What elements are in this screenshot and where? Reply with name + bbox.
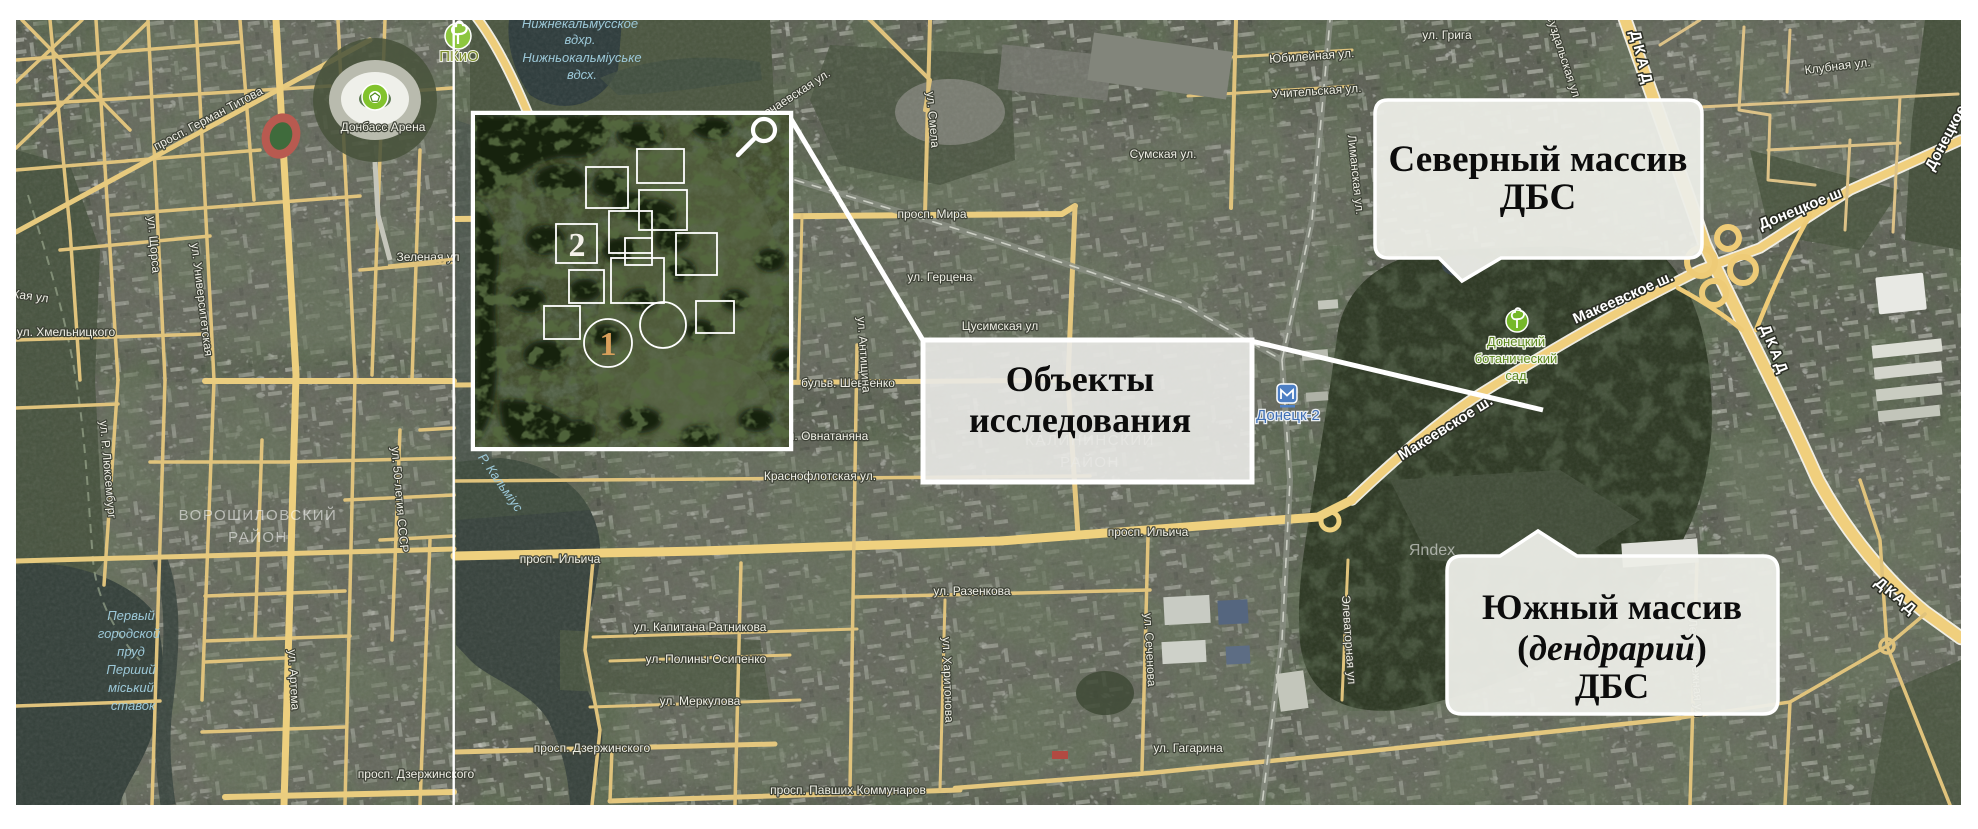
- svg-text:Донбасс Арена: Донбасс Арена: [341, 120, 426, 134]
- svg-text:ул. Разенкова: ул. Разенкова: [933, 584, 1011, 598]
- svg-text:ДБС: ДБС: [1500, 177, 1576, 218]
- svg-text:исследования: исследования: [969, 400, 1191, 440]
- svg-text:ДБС: ДБС: [1575, 666, 1649, 706]
- svg-text:ставок: ставок: [111, 698, 156, 713]
- svg-text:Перший: Перший: [106, 662, 155, 677]
- svg-text:ВОРОШИЛОВСКИЙ: ВОРОШИЛОВСКИЙ: [179, 506, 338, 524]
- svg-text:Южный массив: Южный массив: [1482, 587, 1742, 627]
- svg-text:ул. Герцена: ул. Герцена: [907, 270, 972, 284]
- svg-text:ПКиО: ПКиО: [439, 48, 479, 65]
- svg-text:ул. Грига: ул. Грига: [1422, 28, 1472, 42]
- svg-text:мiський: мiський: [108, 680, 154, 695]
- svg-text:вдхр.: вдхр.: [564, 32, 595, 47]
- svg-text:РАЙОН: РАЙОН: [228, 528, 288, 546]
- svg-text:ботанический: ботанический: [1475, 351, 1558, 366]
- svg-text:Цусимская ул: Цусимская ул: [962, 319, 1038, 333]
- svg-text:просп. Дзержинского: просп. Дзержинского: [358, 767, 475, 781]
- svg-text:2: 2: [569, 227, 586, 264]
- svg-text:просп. Дзержинского: просп. Дзержинского: [534, 741, 651, 755]
- svg-text:Краснофлотская ул.: Краснофлотская ул.: [764, 469, 876, 483]
- svg-text:пруд: пруд: [117, 644, 145, 659]
- svg-text:просп. Ильича: просп. Ильича: [1108, 525, 1189, 539]
- svg-text:Нижньокальмiуське: Нижньокальмiуське: [522, 50, 641, 65]
- svg-text:городской: городской: [98, 626, 160, 641]
- svg-text:ул. Капитана Ратникова: ул. Капитана Ратникова: [634, 620, 767, 634]
- svg-text:Сумская ул.: Сумская ул.: [1130, 147, 1197, 161]
- svg-text:ул. Хмельницкого: ул. Хмельницкого: [17, 325, 116, 339]
- svg-text:Объекты: Объекты: [1006, 359, 1155, 399]
- svg-text:Донецк-2: Донецк-2: [1256, 407, 1320, 424]
- svg-text:1: 1: [600, 326, 617, 363]
- svg-text:ул. Полины Осипенко: ул. Полины Осипенко: [646, 652, 767, 666]
- svg-text:просп. Мира: просп. Мира: [897, 207, 966, 221]
- svg-text:просп. Ильича: просп. Ильича: [520, 552, 601, 566]
- svg-text:бульв. Шевченко: бульв. Шевченко: [801, 376, 895, 390]
- svg-text:вдсх.: вдсх.: [567, 67, 597, 82]
- svg-text:(дендрарий): (дендрарий): [1517, 628, 1707, 668]
- svg-text:просп. Павших Коммунаров: просп. Павших Коммунаров: [770, 783, 926, 797]
- svg-text:Первый: Первый: [107, 608, 154, 623]
- svg-text:Яndex: Яndex: [1409, 542, 1455, 559]
- svg-text:ул. Овнатаняна: ул. Овнатаняна: [782, 429, 869, 443]
- svg-text:Донецкий: Донецкий: [1487, 334, 1545, 349]
- svg-text:сад: сад: [1505, 368, 1527, 383]
- svg-text:ул. Гагарина: ул. Гагарина: [1153, 741, 1223, 755]
- svg-text:Северный массив: Северный массив: [1389, 139, 1688, 180]
- svg-text:ул. Меркулова: ул. Меркулова: [660, 694, 741, 708]
